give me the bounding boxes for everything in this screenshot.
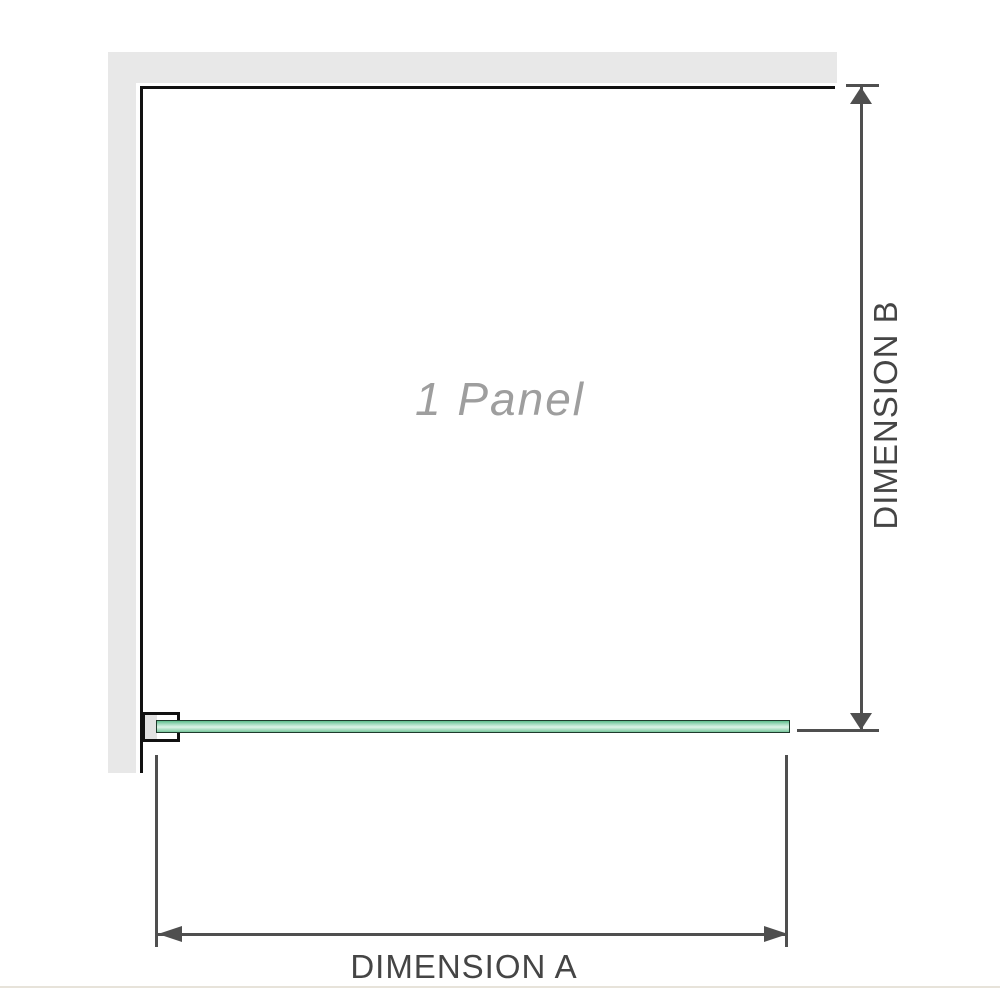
dimension-a-left-extension-line — [155, 755, 158, 947]
dimension-a-left-arrowhead-icon — [158, 926, 182, 942]
dimension-a-right-arrowhead-icon — [764, 926, 788, 942]
glass-panel — [156, 720, 790, 733]
bottom-divider — [0, 986, 1000, 988]
dimension-b-label: DIMENSION B — [869, 290, 903, 540]
wall-left-band — [108, 52, 136, 773]
dimension-a-label: DIMENSION A — [314, 948, 614, 986]
wall-inner-edge-top — [140, 86, 835, 89]
dimension-a-right-extension-line — [785, 755, 788, 947]
wall-inner-edge-left — [140, 86, 143, 773]
dimension-b-down-arrowhead-icon — [850, 713, 872, 730]
dimension-a-line — [158, 933, 788, 936]
wall-top-band — [108, 52, 837, 83]
dimension-b-up-arrowhead-icon — [850, 87, 872, 104]
panel-count-label: 1 Panel — [350, 372, 650, 426]
dimension-b-line — [860, 87, 863, 730]
shower-panel-dimension-diagram: 1 Panel DIMENSION B DIMENSION A — [0, 0, 1000, 1000]
